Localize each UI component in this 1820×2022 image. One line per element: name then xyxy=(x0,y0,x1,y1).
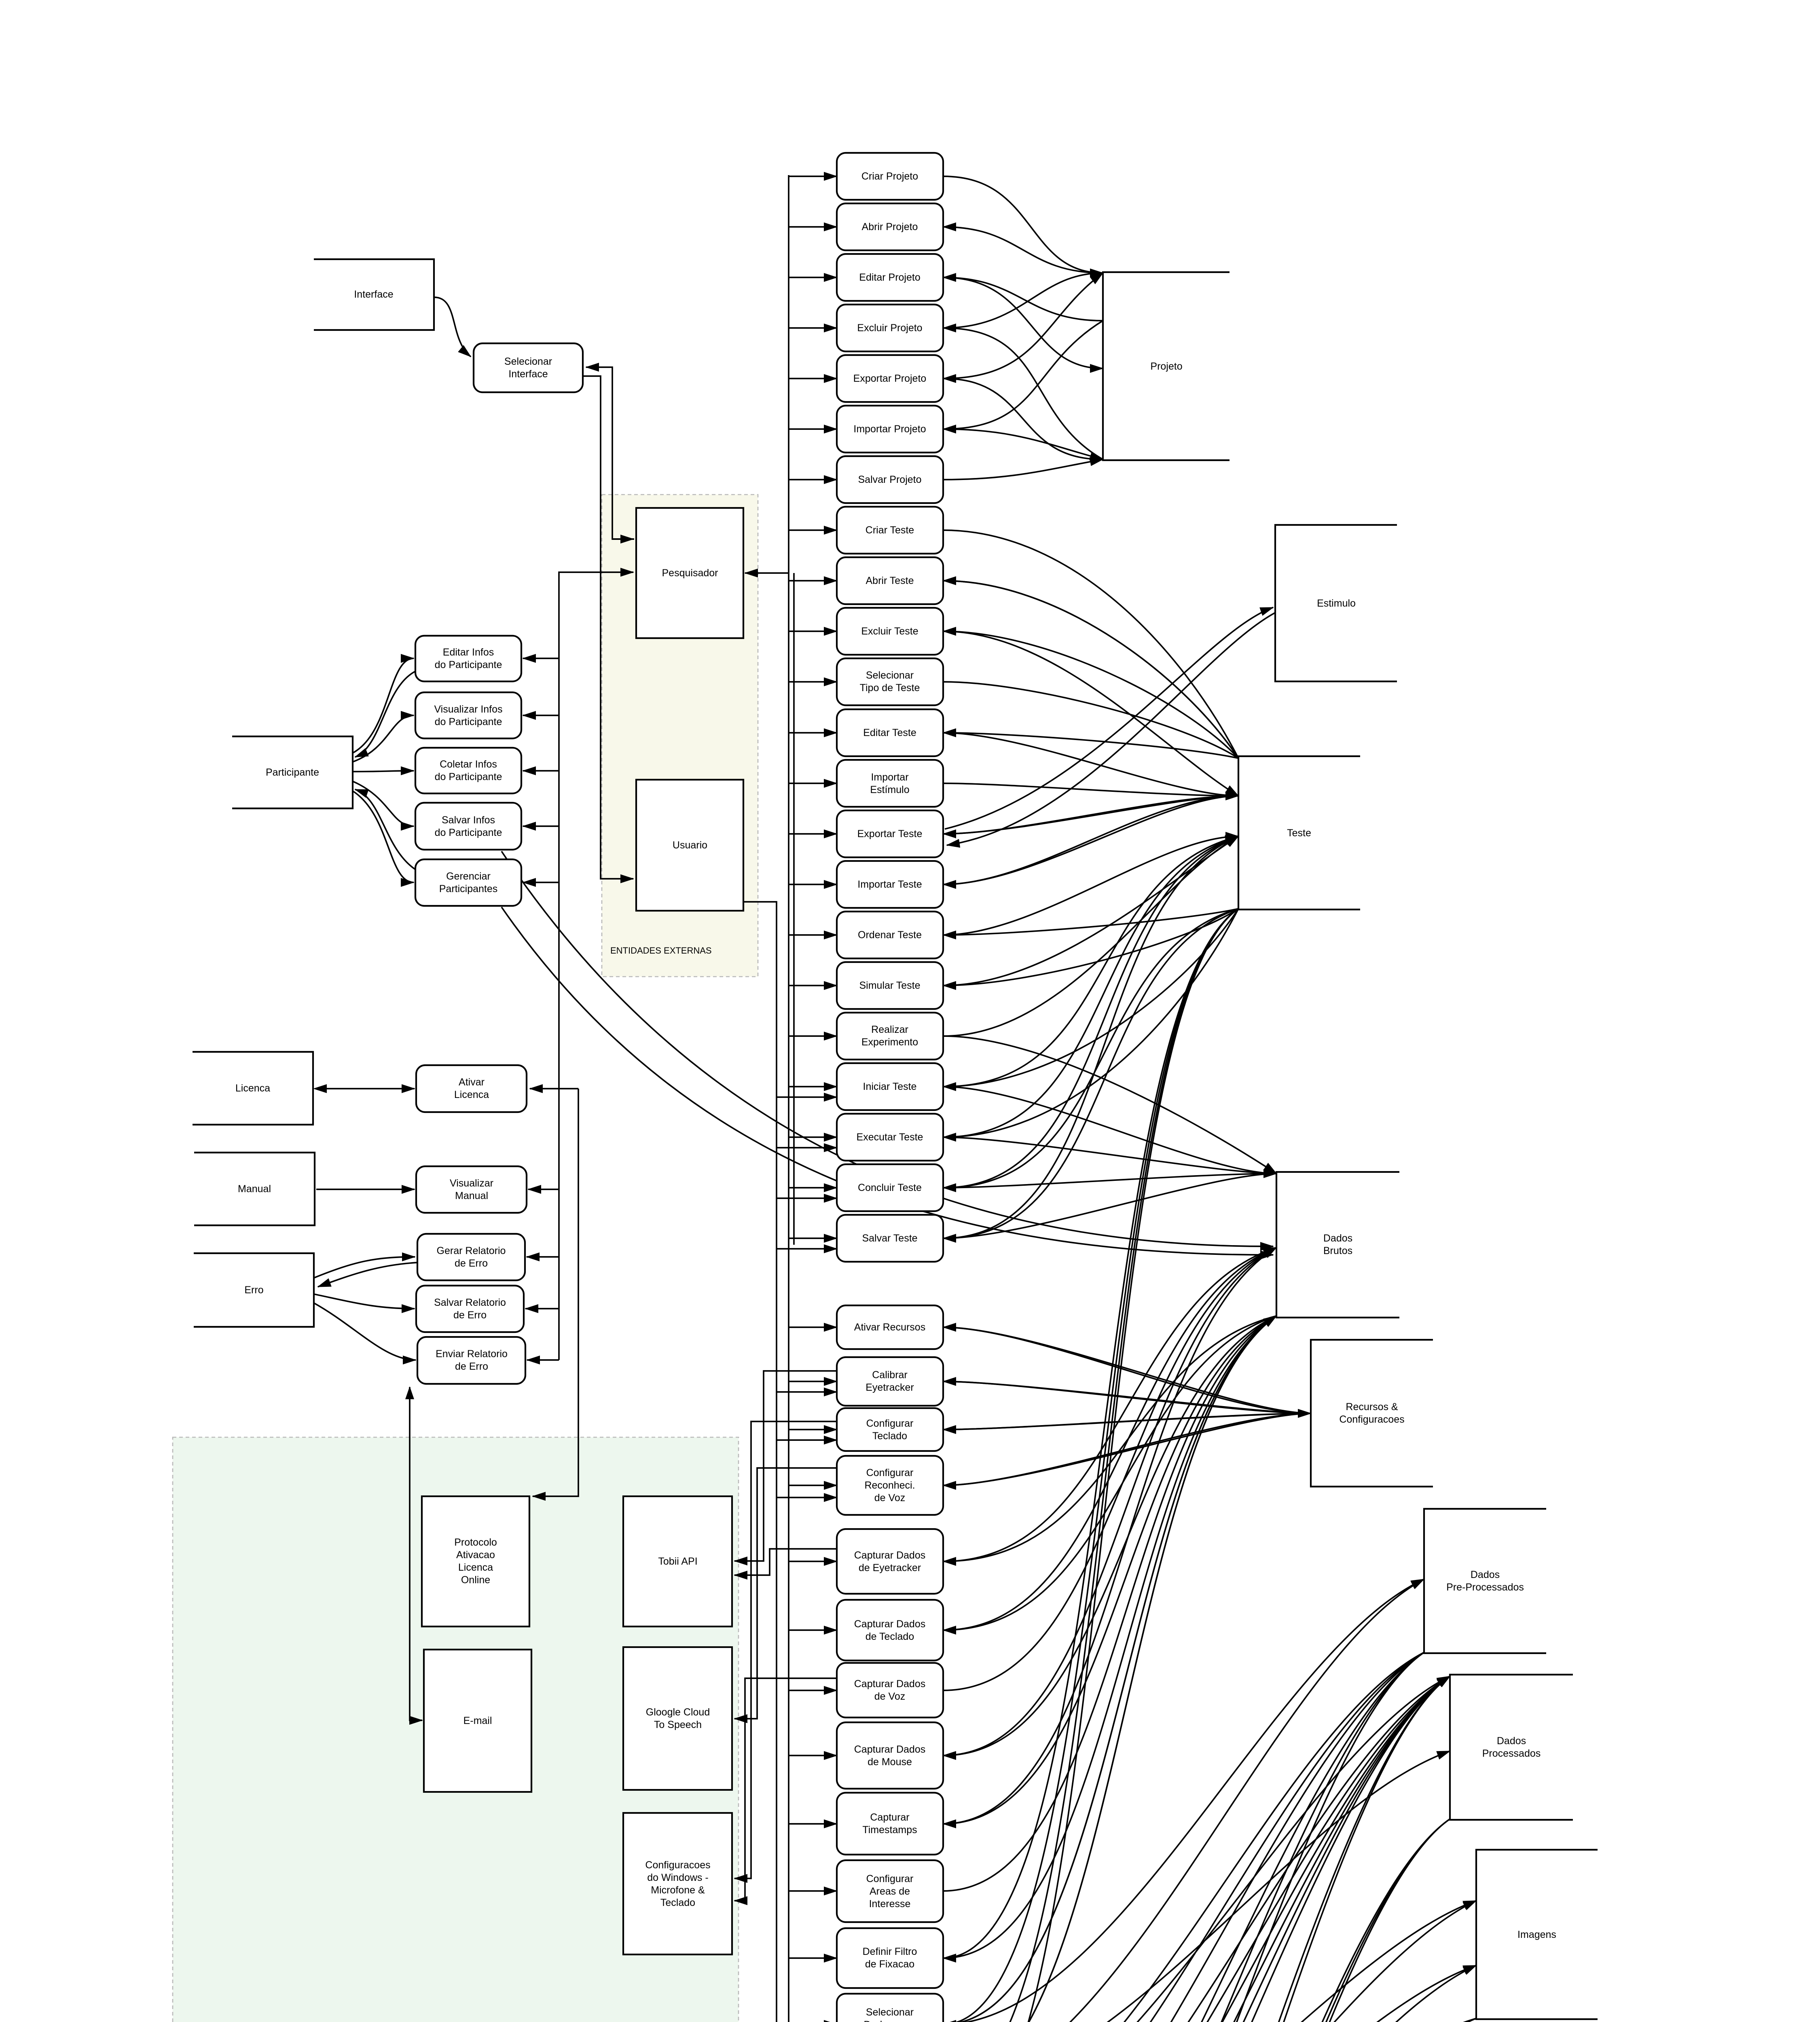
svg-text:Exportar Teste: Exportar Teste xyxy=(857,828,923,840)
svg-text:Importar Teste: Importar Teste xyxy=(857,879,922,890)
svg-text:Executar Teste: Executar Teste xyxy=(857,1132,923,1143)
svg-text:Interface: Interface xyxy=(354,289,393,300)
svg-text:E-mail: E-mail xyxy=(463,1715,492,1726)
svg-text:Criar Projeto: Criar Projeto xyxy=(861,171,918,182)
svg-text:Simular Teste: Simular Teste xyxy=(859,980,921,991)
svg-text:Projeto: Projeto xyxy=(1150,361,1182,372)
svg-text:Erro: Erro xyxy=(244,1284,263,1296)
svg-text:ConfigurarAreas deInteresse: ConfigurarAreas deInteresse xyxy=(866,1873,914,1910)
svg-text:Tobii API: Tobii API xyxy=(658,1556,697,1567)
svg-text:Editar Teste: Editar Teste xyxy=(863,727,916,738)
svg-text:Manual: Manual xyxy=(238,1183,271,1195)
svg-text:Criar Teste: Criar Teste xyxy=(866,525,914,536)
svg-text:Usuario: Usuario xyxy=(673,840,707,851)
svg-text:Ativar Recursos: Ativar Recursos xyxy=(854,1322,925,1333)
svg-text:ENTIDADES EXTERNAS: ENTIDADES EXTERNAS xyxy=(610,945,712,956)
svg-text:Concluir Teste: Concluir Teste xyxy=(858,1182,922,1193)
svg-text:Pesquisador: Pesquisador xyxy=(662,567,718,579)
svg-text:Participante: Participante xyxy=(266,767,319,778)
svg-text:Iniciar Teste: Iniciar Teste xyxy=(863,1081,917,1092)
svg-text:Abrir Projeto: Abrir Projeto xyxy=(862,221,918,233)
svg-text:SelecionarDados paraAnalise: SelecionarDados paraAnalise xyxy=(863,2007,916,2022)
svg-text:Imagens: Imagens xyxy=(1517,1929,1556,1940)
svg-text:Importar Projeto: Importar Projeto xyxy=(853,423,926,435)
svg-text:Estimulo: Estimulo xyxy=(1317,598,1356,609)
svg-text:Salvar Teste: Salvar Teste xyxy=(862,1233,917,1244)
svg-text:Salvar Projeto: Salvar Projeto xyxy=(858,474,921,485)
svg-text:Excluir Teste: Excluir Teste xyxy=(861,626,918,637)
svg-text:Licenca: Licenca xyxy=(235,1083,270,1094)
svg-text:Ordenar Teste: Ordenar Teste xyxy=(858,929,922,941)
svg-text:Teste: Teste xyxy=(1287,827,1311,839)
svg-text:Exportar Projeto: Exportar Projeto xyxy=(853,373,927,384)
svg-text:Editar Projeto: Editar Projeto xyxy=(859,272,920,283)
svg-text:Abrir Teste: Abrir Teste xyxy=(866,575,914,586)
svg-text:Excluir Projeto: Excluir Projeto xyxy=(857,322,922,334)
